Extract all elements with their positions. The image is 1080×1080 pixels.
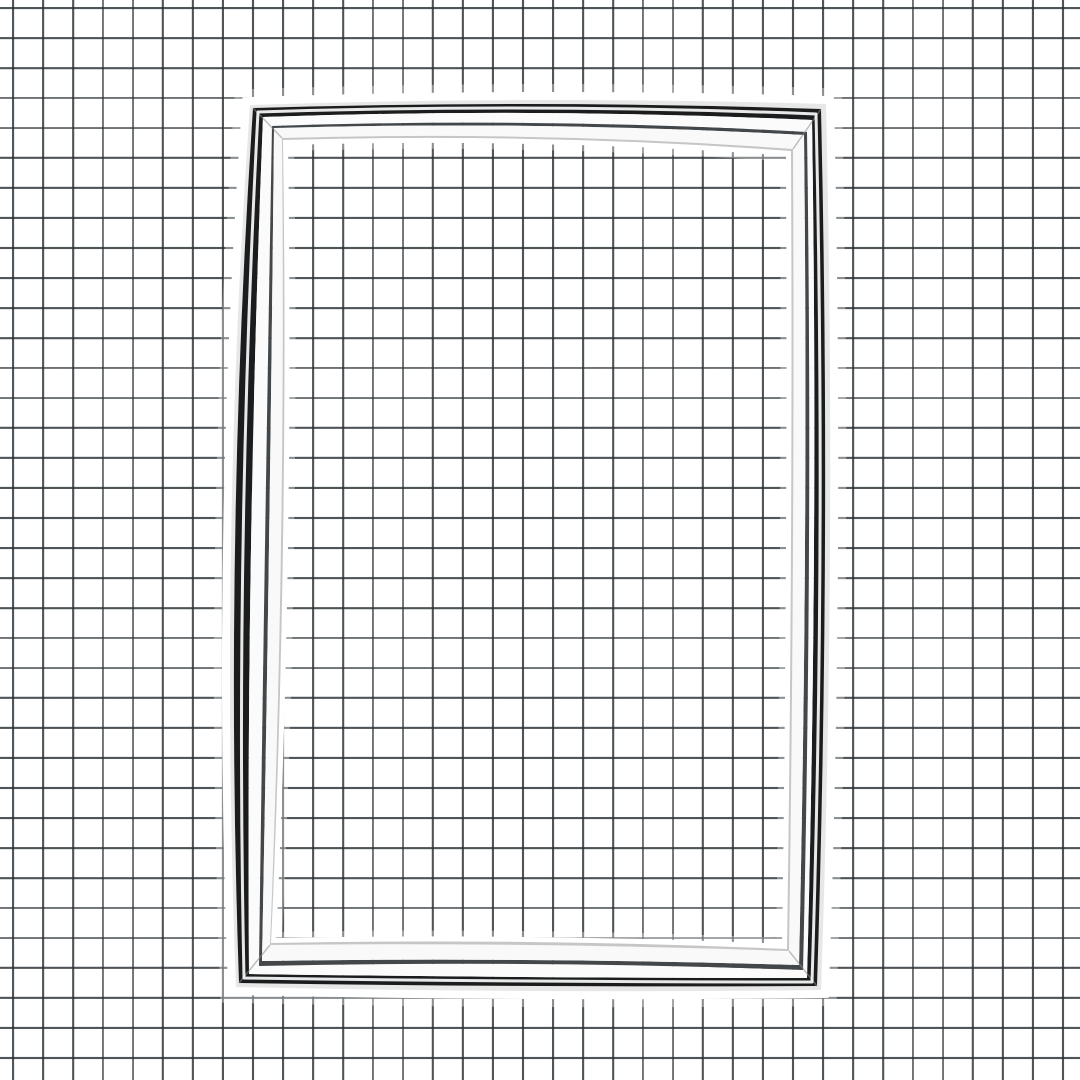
- gasket-ring-outer-lip: [230, 100, 830, 991]
- gasket-inner-halo: [271, 138, 792, 949]
- gasket-photo: [0, 0, 1080, 1080]
- gasket-outer-halo-soft: [230, 100, 830, 991]
- gasket-ring-outer-dark-band: [234, 104, 825, 986]
- gasket-specular-highlight: [241, 108, 820, 982]
- gasket-ring-inner-lip: [270, 136, 794, 951]
- gasket-inner-halo-soft: [271, 138, 792, 949]
- gasket-ring-pinstripe: [259, 123, 809, 970]
- gasket-outer-halo: [230, 100, 830, 991]
- gasket-ring-outer-white-band: [249, 113, 815, 978]
- page: { "meta": { "description": "Product phot…: [0, 0, 1080, 1080]
- scene: [0, 0, 1080, 1080]
- gasket-ring-inner-white-band: [262, 125, 805, 965]
